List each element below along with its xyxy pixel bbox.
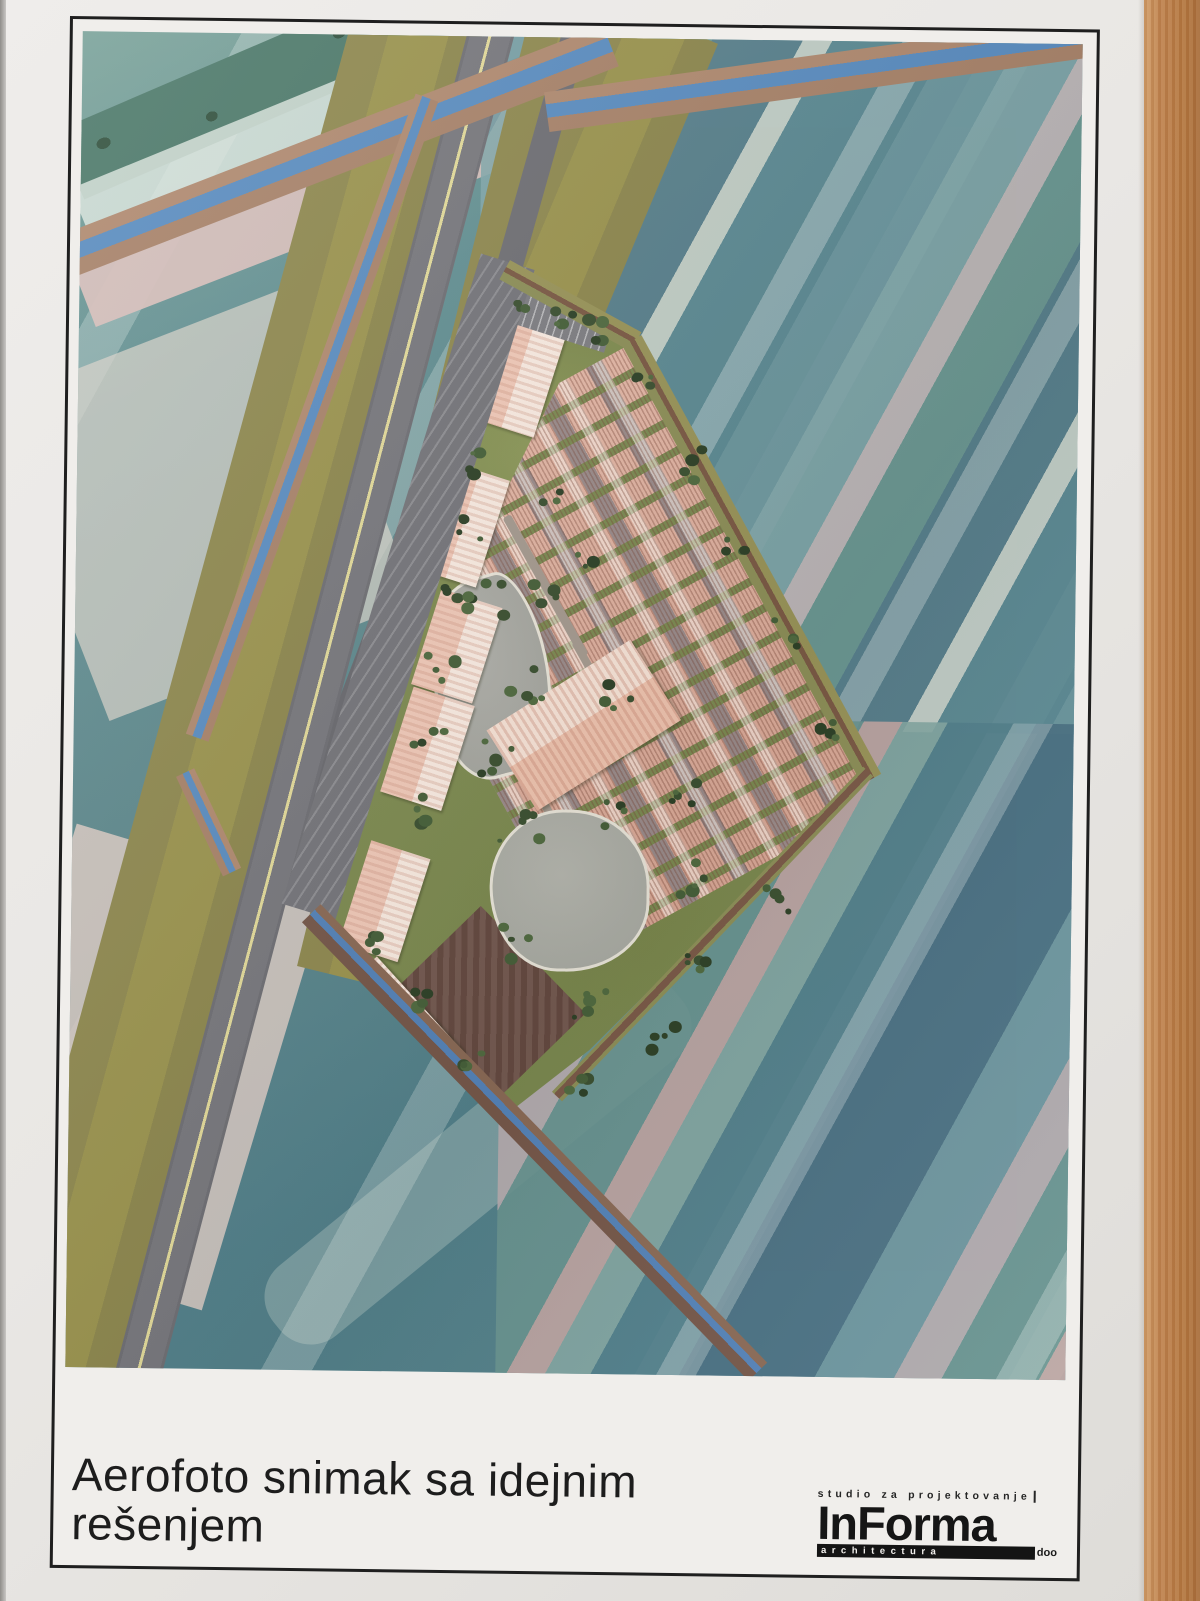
wood-table-surface: [1144, 0, 1200, 1601]
sheet-frame: Aerofoto snimak sa idejnim rešenjem stud…: [50, 16, 1100, 1581]
informa-logo: studio za projektovanje InForma architec…: [817, 1484, 1058, 1560]
logo-name: InForma: [817, 1502, 1058, 1546]
title-block: Aerofoto snimak sa idejnim rešenjem stud…: [67, 1371, 1065, 1570]
photo-wash-overlay: [65, 31, 1082, 1380]
logo-field: architectura: [817, 1544, 1035, 1560]
photo-background: Aerofoto snimak sa idejnim rešenjem stud…: [0, 0, 1200, 1601]
page-title: Aerofoto snimak sa idejnim rešenjem: [71, 1451, 818, 1557]
aerial-photo: [65, 31, 1082, 1380]
table-edge: [0, 0, 6, 1601]
logo-suffix: doo: [1035, 1547, 1057, 1560]
logo-bar-row: architectura doo: [817, 1544, 1057, 1560]
